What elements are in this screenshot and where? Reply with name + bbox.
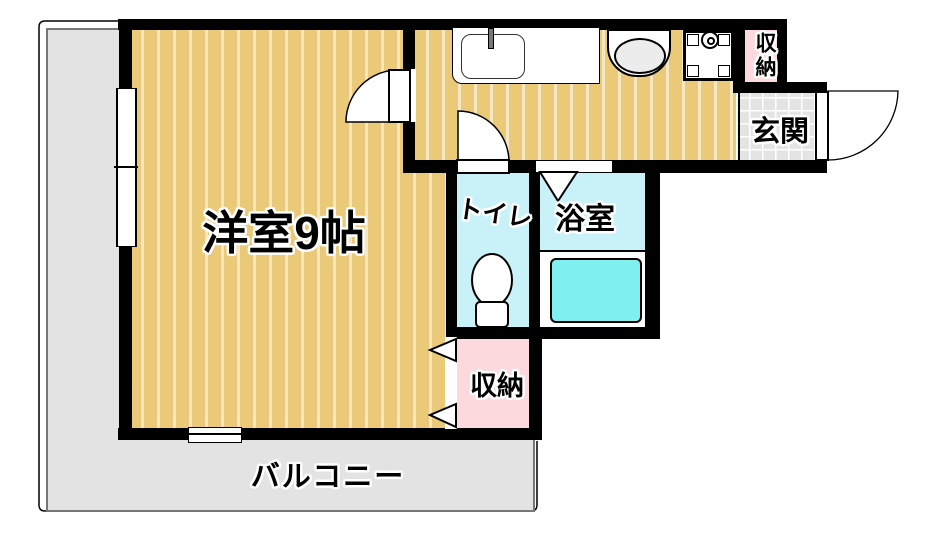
toilet-bowl — [472, 254, 512, 306]
main-room-label: 洋室9帖 — [164, 197, 404, 263]
entrance-label: 玄関 — [746, 108, 814, 150]
storage-top-label: 収納 — [749, 32, 779, 80]
entrance-door-leaf — [816, 92, 828, 160]
balcony-label: バルコニー — [238, 453, 418, 495]
floor-plan: 洋室9帖 トイレ 浴室 玄関 収納 収納 バルコニー — [0, 0, 941, 541]
storage-door-tri-2 — [430, 404, 456, 427]
bathroom-label: 浴室 — [545, 194, 625, 238]
doors-and-fixtures-layer — [0, 0, 941, 541]
entrance-door-swing — [828, 91, 898, 160]
room-door-leaf — [389, 70, 410, 122]
storage-bottom-label: 収納 — [460, 364, 534, 403]
hall-door-leaf — [457, 160, 509, 173]
hall-door-swing — [458, 111, 509, 162]
storage-door-tri-1 — [430, 339, 456, 361]
toilet-tank — [476, 302, 508, 327]
